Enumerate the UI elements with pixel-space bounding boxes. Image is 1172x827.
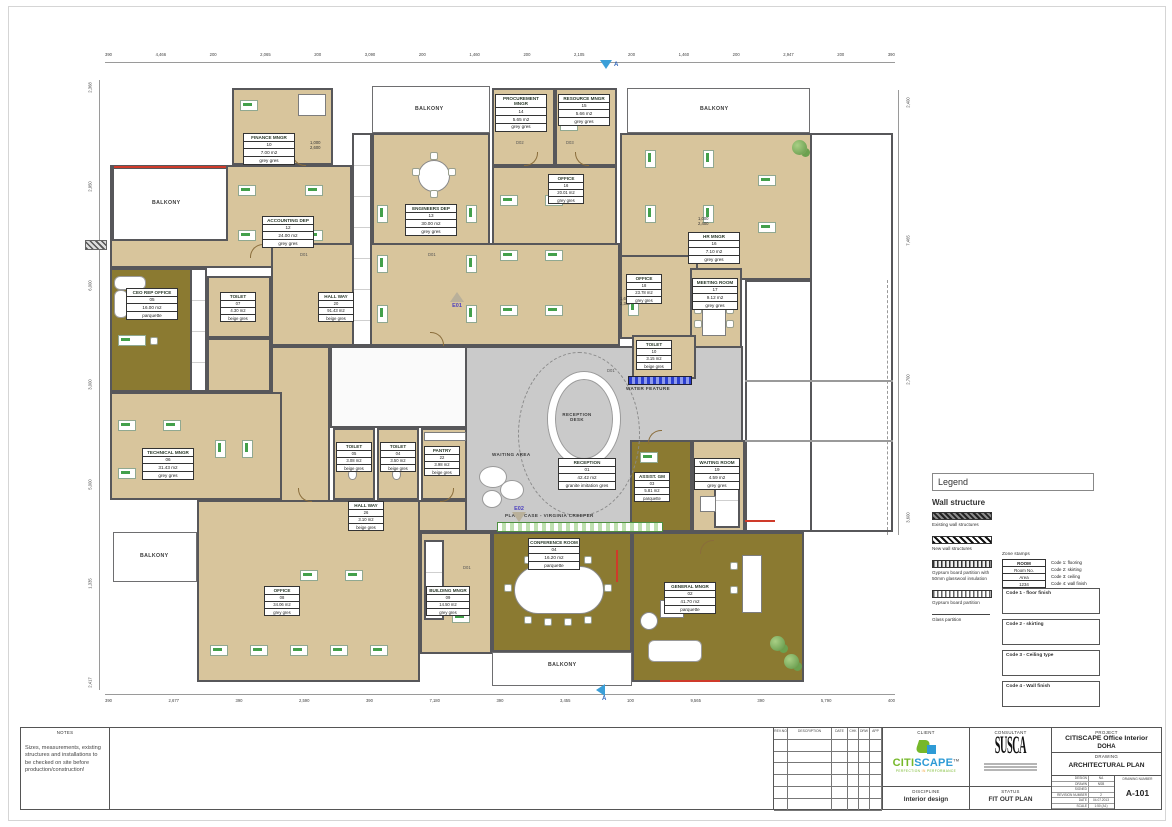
drawing-number-label: DRAWING NUMBER [1114,777,1161,781]
chair [564,618,572,626]
room-technical-mngr [110,392,282,500]
revision-table: REV.NODESCRIPTIONDATECHKDRWAPP [774,727,882,810]
dim-labels-left: 2,3682,9506,0003,0005,0001,3352,417 [84,85,96,685]
zone-stamp-sample: ROOM Room No. Area 1234 [1002,559,1046,588]
discipline-panel: DISCIPLINE Interior design [883,786,969,809]
legend-item: Existing wall structures [932,512,1100,528]
chair [412,168,420,176]
door-tag: D02 [516,140,524,145]
room-stamp-accounting: ACCOUNTING DEP1224.00 m2grey gres [262,216,314,248]
round-table [640,612,658,630]
chair [150,337,158,345]
wall-swatch-existing [932,512,992,520]
chair [448,168,456,176]
desk [500,195,518,206]
door-tag: D03 [566,140,574,145]
room-stamp-ceo: CEO REP OFFICE0516.00 m2parquette [126,288,178,320]
chair [604,584,612,592]
chair [584,616,592,624]
room-mini-office [207,338,271,392]
dim-line-top [105,62,895,63]
status-panel: STATUS FIT OUT PLAN [970,786,1051,809]
desk [758,222,776,233]
existing-wall-mark [114,166,226,168]
title-strip: NOTES Sizes, measurements, existing stru… [20,727,1162,810]
wall-structure-title: Wall structure [932,498,1100,507]
dim-line-right [898,90,899,535]
door-tag: D01 [300,252,308,257]
zone-codes: Code 1: flooring Code 2: skirting Code 3… [1051,559,1087,587]
waiting-sofa [500,480,524,500]
desk [118,335,146,346]
discipline-label: DISCIPLINE [883,787,969,794]
door-tag: D01 [428,252,436,257]
balcony-label: BALKONY [140,553,168,559]
executive-desk [742,555,762,613]
chair [524,616,532,624]
legend-item: New wall structures [932,536,1100,552]
plant [792,140,807,155]
room-stamp-building: BUILDING MNGR0914.50 m2grey gres [426,586,470,616]
reception-desk-label: RECEPTION DESK [560,412,594,422]
room-stamp-toilet07: TOILET074.30 m2beige gres [220,292,256,322]
desk [466,255,477,273]
desk [466,205,477,223]
balcony-bottom [492,652,632,686]
empty-panel [110,727,774,810]
room-stamp-hr: HR MNGR167.10 m2grey gres [688,232,740,264]
susca-address-lines [970,763,1051,771]
desk [500,305,518,316]
door-tag: D01 [607,368,615,373]
room-stamp-pantry: PANTRY223.98 m2beige gres [424,446,460,476]
room-stamp-assist-gm: ASSIST. GM035.81 m2parquette [634,472,670,502]
room-stamp-office08: OFFICE0834.06 m2grey gres [264,586,300,616]
legend-title: Legend [932,473,1094,491]
room-stamp-conference: CONFERENCE ROOM0416.20 m2parquette [528,538,580,570]
drawing-label: DRAWING [1052,753,1161,760]
fold-dash-line [887,280,888,535]
status-value: FIT OUT PLAN [970,796,1051,803]
water-feature-label: WATER FEATURE [626,386,670,391]
existing-wall-mark [745,520,775,522]
desk [645,150,656,168]
client-panel: CLIENT CITISCAPETM PERFECTION IN PERFORM… [882,727,970,810]
desk [210,645,228,656]
waiting-area-label: WAITING AREA [492,452,531,457]
cabinet [298,94,326,116]
room-stamp-resource: RESOURCE MNGR155.66 m2grey gres [558,94,610,126]
chair [430,190,438,198]
room-stamp-engineers: ENGINEERS DEP1330.00 m2grey gres [405,204,457,236]
elevation-marker-e01: E01 [450,292,464,309]
chair [584,556,592,564]
desk [250,645,268,656]
plant [784,654,799,669]
desk [163,420,181,431]
balcony-label: BALKONY [700,106,728,112]
section-marker-a-bottom [596,684,605,696]
drawing-number-box: DRAWING NUMBER A-101 [1114,775,1161,809]
desk [240,100,258,111]
desk [242,440,253,458]
discipline-value: Interior design [883,796,969,803]
room-stamp-finance: FINANCE MNGR107.00 m2grey gres [243,133,295,165]
conference-table [514,566,604,614]
drawing-name: ARCHITECTURAL PLAN [1052,762,1161,769]
sofa [648,640,702,662]
room-stamp-technical: TECHNICAL MNGR0631.43 m2grey gres [142,448,194,480]
closet-column [190,268,207,392]
rooms-right-inner [745,280,812,532]
desk [238,185,256,196]
dim-line-left [99,80,100,690]
closet-column [352,133,372,346]
chair [730,586,738,594]
citiscape-logo: CITISCAPETM PERFECTION IN PERFORMANCE [883,740,969,773]
drawing-number: A-101 [1114,788,1161,798]
chair [730,562,738,570]
desk [500,250,518,261]
legend: Legend Wall structure Existing wall stru… [932,473,1100,631]
room-stamp-waiting: WAITING ROOM194.59 m2grey gres [694,458,740,490]
rooms-right-shell [810,133,893,532]
desk [377,305,388,323]
notes-text: Sizes, measurements, existing structures… [21,735,109,785]
room-stamp-hallway26: HALL WAY263.10 m2beige gres [348,501,384,531]
balcony-label: BALKONY [415,106,443,112]
desk [640,452,658,463]
chair [544,618,552,626]
plant [770,636,785,651]
project-city: DOHA [1052,743,1161,750]
desk [645,205,656,223]
door-dim: 1,0002,400 [698,216,708,226]
chair [504,584,512,592]
desk [758,175,776,186]
desk [118,468,136,479]
dim-labels-bottom: 3902,6773902,5903907,1803903,4551009,565… [105,698,895,703]
round-table [418,160,450,192]
existing-wall-mark [616,550,618,582]
desk [377,205,388,223]
susca-logo: SUSCA [970,738,1051,772]
project-name: CITISCAPE Office Interior [1052,735,1161,743]
desk [300,570,318,581]
chair [694,320,702,328]
desk [703,150,714,168]
balcony-label: BALKONY [548,662,576,668]
plant-case-strip [497,522,663,532]
section-marker-a-top [600,60,612,69]
citiscape-logo-icon [913,740,939,756]
wall-swatch-new [932,536,992,544]
room-stamp-toilet05: TOILET053.08 m2beige gres [336,442,372,472]
door-dim: 1,0002,600 [310,140,320,150]
section-marker-a-bottom-label: A [602,696,606,702]
water-feature-bar [628,376,692,385]
pantry-counter [424,432,466,441]
client-label: CLIENT [883,728,969,735]
desk [545,305,563,316]
door-tag: D01 [463,565,471,570]
desk [290,645,308,656]
wall-swatch-gypsum-insulated [932,560,992,568]
room-stamp-reception: RECEPTION0142.42 m2granite imitation gre… [558,458,616,490]
room-stamp-general: GENERAL MNGR0241.70 m2parquette [664,582,716,614]
dim-line-bottom [105,694,895,695]
code-box-3: Code 3 - Ceiling type [1002,650,1100,676]
room-stamp-toilet10: TOILET103.15 m2beige gres [636,340,672,370]
desk [118,420,136,431]
desk [466,305,477,323]
code-box-4: Code 4 - Wall finish [1002,681,1100,707]
code-box-1: Code 1 - floor finish [1002,588,1100,614]
wall-swatch-gypsum [932,590,992,598]
room-stamp-meeting: MEETING ROOM179.12 m2grey gres [692,278,738,310]
room-stamp-procurement: PROCUREMENT MNGR145.65 m2grey gres [495,94,547,132]
desk [345,570,363,581]
consultant-panel: CONSULTANT SUSCA STATUS FIT OUT PLAN [970,727,1052,810]
project-panel: PROJECT CITISCAPE Office Interior DOHA D… [1052,727,1162,810]
drawing-sheet: WATER FEATURE PLANT CASE - VIRGINIA CREE… [0,0,1172,827]
courtyard-void [330,346,467,428]
desk [330,645,348,656]
notes-panel: NOTES Sizes, measurements, existing stru… [20,727,110,810]
room-stamp-hallway20: HALL WAY2091.43 m2beige gres [318,292,354,322]
desk [238,230,256,241]
desk [215,440,226,458]
code-box-2: Code 2 - skirting [1002,619,1100,645]
room-stamp-office16: OFFICE1620.01 m2grey gres [548,174,584,204]
zone-stamps-title: Zone stamps [1002,552,1102,557]
zone-stamps: Zone stamps ROOM Room No. Area 1234 Code… [1002,552,1102,707]
room-stamp-office18: OFFICE1823.78 m2grey gres [626,274,662,304]
dim-labels-top: 3904,4662002,0652003,0902001,4602002,105… [105,52,895,57]
status-label: STATUS [970,787,1051,794]
wall-swatch-glass [932,614,990,616]
chair [726,320,734,328]
existing-wall-mark [660,680,720,682]
desk [545,250,563,261]
waiting-sofa [482,490,502,508]
revision-grid: REV.NODESCRIPTIONDATECHKDRWAPP [774,728,881,809]
desk [370,645,388,656]
desk [305,185,323,196]
seat [700,496,716,512]
elevation-marker-e02: E02 [512,506,526,523]
chair [430,152,438,160]
section-marker-a-top-label: A [614,62,618,68]
dim-labels-right: 2,4007,4652,7003,600 [902,100,914,520]
drawing-info-table: DESIGNNA DRAWNNSB SIGNED REVISION NUMBER… [1052,775,1115,809]
balcony-label: BALKONY [152,200,180,206]
room-stamp-toilet04: TOILET043.50 m2beige gres [380,442,416,472]
desk [377,255,388,273]
